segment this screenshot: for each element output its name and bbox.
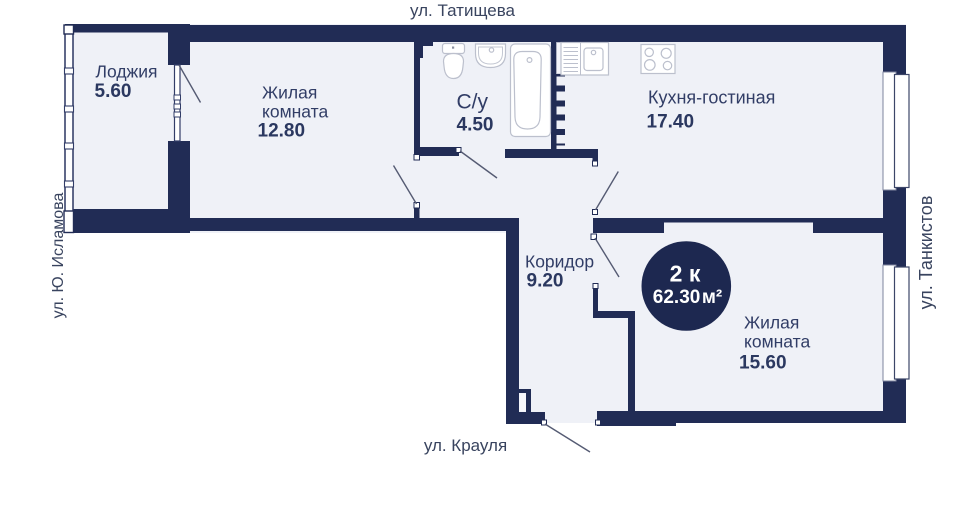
svg-text:ул. Танкистов: ул. Танкистов bbox=[916, 196, 936, 310]
svg-text:15.60: 15.60 bbox=[739, 353, 787, 374]
svg-text:12.80: 12.80 bbox=[258, 121, 306, 142]
svg-text:комната: комната bbox=[262, 102, 328, 122]
svg-text:Жилая: Жилая bbox=[744, 313, 799, 333]
svg-text:С/у: С/у bbox=[457, 91, 489, 114]
svg-text:ул. Крауля: ул. Крауля bbox=[424, 436, 507, 455]
svg-text:Кухня-гостиная: Кухня-гостиная bbox=[648, 88, 775, 108]
svg-text:комната: комната bbox=[744, 332, 810, 352]
svg-text:Коридор: Коридор bbox=[525, 252, 594, 272]
svg-text:17.40: 17.40 bbox=[647, 112, 695, 133]
svg-text:Лоджия: Лоджия bbox=[96, 62, 158, 82]
svg-text:2 к: 2 к bbox=[670, 261, 701, 287]
svg-text:4.50: 4.50 bbox=[457, 115, 494, 136]
svg-text:5.60: 5.60 bbox=[95, 81, 132, 102]
svg-text:62.30м²: 62.30м² bbox=[653, 287, 722, 308]
svg-text:ул. Татищева: ул. Татищева bbox=[410, 1, 516, 20]
svg-text:Жилая: Жилая bbox=[262, 83, 317, 103]
svg-text:9.20: 9.20 bbox=[527, 271, 564, 292]
